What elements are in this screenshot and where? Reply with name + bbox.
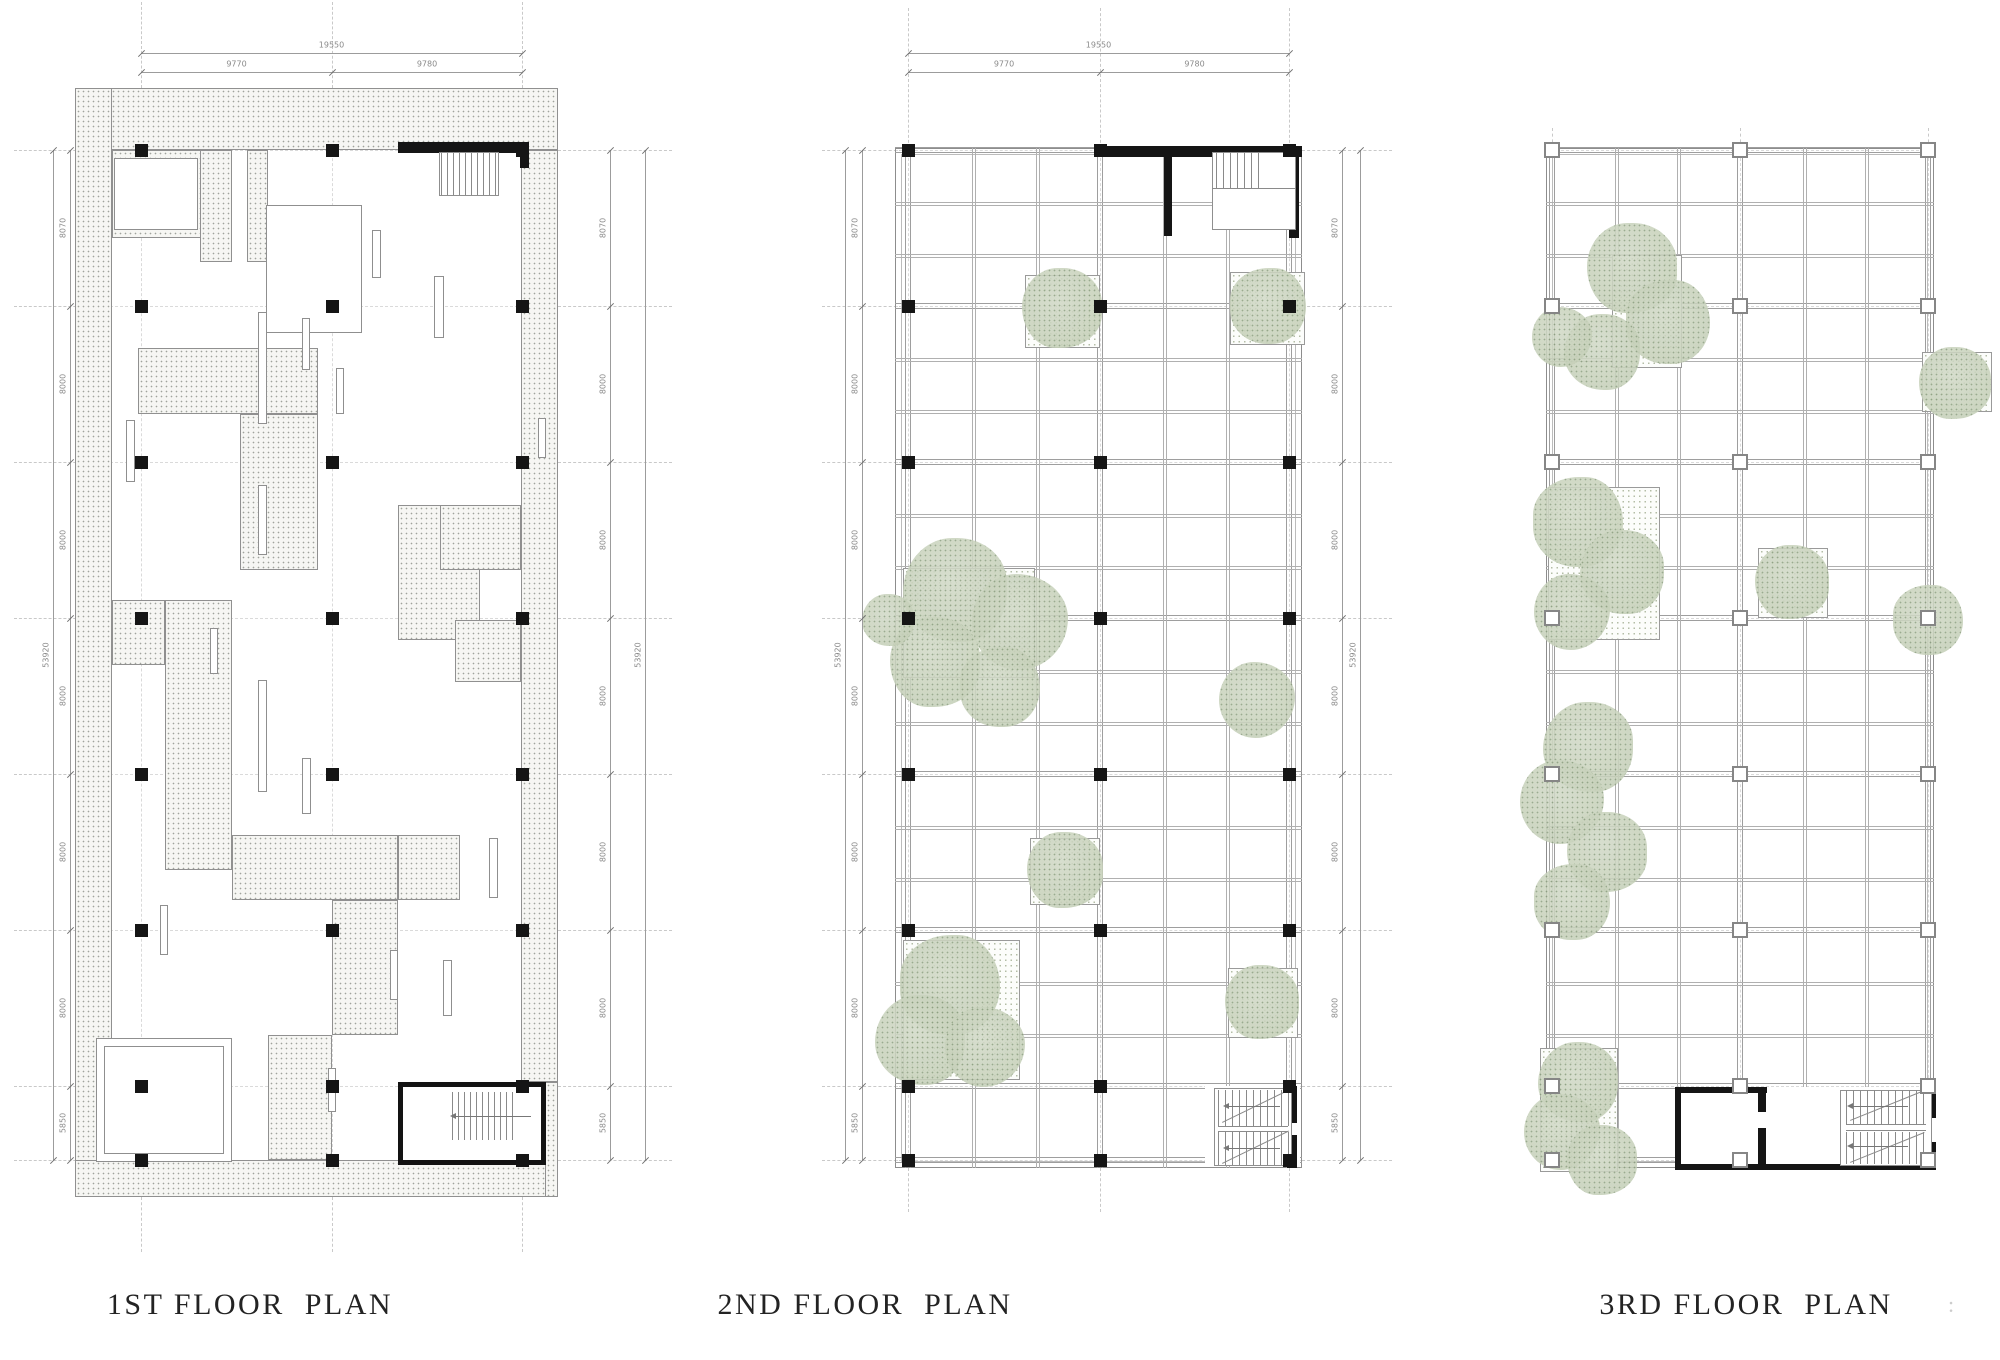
grid-line	[1923, 1090, 1924, 1124]
grid-line	[1852, 1146, 1908, 1147]
grid-line	[1916, 1090, 1917, 1124]
dim-label: 19550	[1086, 41, 1111, 50]
grid-dash-line	[1289, 8, 1290, 148]
dim-label: 8070	[851, 218, 860, 238]
column	[1920, 1078, 1936, 1094]
wall-hatch	[112, 600, 165, 665]
grid-line	[1237, 152, 1238, 188]
grid-dash-line	[141, 2, 142, 88]
second-floor-plan-title: 2ND FLOOR PLAN	[717, 1288, 1012, 1322]
wall-hatch	[268, 1035, 332, 1160]
stair-outline	[439, 152, 499, 196]
stair-arrow-head	[450, 1113, 456, 1119]
column	[902, 612, 915, 625]
grid-line	[1888, 1090, 1889, 1124]
grid-dash-line	[908, 1168, 909, 1212]
grid-line	[471, 153, 472, 195]
grid-line	[1852, 1106, 1908, 1107]
door-slot	[302, 318, 310, 370]
column	[1544, 1152, 1560, 1168]
grid-line	[1166, 148, 1167, 1168]
wall-black	[1758, 1128, 1766, 1168]
grid-line	[1846, 1124, 1926, 1125]
grid-line	[1267, 1090, 1268, 1126]
column	[1732, 142, 1748, 158]
wall-hatch	[455, 620, 521, 682]
grid-line	[441, 153, 442, 195]
column	[1094, 924, 1107, 937]
column	[326, 456, 339, 469]
column	[1094, 144, 1107, 157]
grid-line	[1803, 148, 1804, 1168]
grid-dash-line	[558, 774, 672, 775]
column	[135, 456, 148, 469]
grid-line	[1867, 1090, 1868, 1124]
wall-black	[1164, 146, 1172, 236]
grid-line	[459, 153, 460, 195]
grid-dash-line	[1289, 1168, 1290, 1212]
grid-line	[1546, 1037, 1934, 1038]
grid-line	[1230, 152, 1231, 188]
wall-hatch	[75, 88, 558, 150]
room-outline	[266, 205, 362, 333]
grid-line	[447, 153, 448, 195]
grid-line	[1546, 670, 1934, 671]
column	[902, 924, 915, 937]
stair-room	[398, 1082, 546, 1165]
column	[1283, 456, 1296, 469]
dim-label: 5850	[599, 1113, 608, 1133]
grid-line	[489, 153, 490, 195]
wall-hatch	[75, 88, 112, 1197]
column	[1544, 142, 1560, 158]
grid-line	[1902, 1090, 1903, 1124]
dim-label: 8000	[1331, 686, 1340, 706]
grid-line	[1888, 1132, 1889, 1164]
column	[1094, 300, 1107, 313]
column	[1920, 1152, 1936, 1168]
grid-dash-line	[1302, 1086, 1392, 1087]
grid-line	[1860, 1132, 1861, 1164]
grid-line	[862, 150, 863, 1160]
dim-label: 8000	[851, 530, 860, 550]
grid-line	[1281, 1090, 1282, 1126]
room-outline	[104, 1046, 224, 1154]
dim-label: 8000	[59, 530, 68, 550]
grid-line	[1546, 982, 1934, 983]
column	[135, 1080, 148, 1093]
dim-label: 8000	[1331, 374, 1340, 394]
column	[516, 300, 529, 313]
grid-line	[895, 517, 1302, 518]
dim-label: 9770	[994, 60, 1014, 69]
column	[1544, 1078, 1560, 1094]
stair-outline	[1212, 152, 1296, 230]
grid-line	[1218, 1126, 1288, 1127]
grid-line	[1874, 1090, 1875, 1124]
column	[1283, 612, 1296, 625]
dim-label: 8000	[599, 530, 608, 550]
wall-hatch	[440, 505, 521, 570]
column	[516, 612, 529, 625]
grid-line	[1232, 1090, 1233, 1126]
tree-canopy	[1225, 965, 1299, 1039]
dim-label: 8000	[59, 374, 68, 394]
grid-dash-line	[1302, 150, 1392, 151]
grid-line	[455, 1116, 531, 1117]
dim-label: 8000	[851, 842, 860, 862]
wall-hatch	[545, 1082, 558, 1197]
grid-line	[1342, 150, 1343, 1160]
column	[516, 1080, 529, 1093]
tree-canopy	[1919, 347, 1991, 419]
column	[902, 1080, 915, 1093]
column	[1732, 1078, 1748, 1094]
column	[1544, 922, 1560, 938]
grid-line	[1895, 1132, 1896, 1164]
tree-canopy	[1022, 268, 1102, 348]
grid-dash-line	[1302, 618, 1392, 619]
dim-label: 8000	[851, 374, 860, 394]
column	[902, 1154, 915, 1167]
tree-canopy	[1027, 832, 1103, 908]
grid-line	[1258, 152, 1259, 188]
column	[902, 456, 915, 469]
wall-hatch	[165, 600, 232, 870]
title-suffix-mark: :	[1948, 1292, 1954, 1318]
grid-dash-line	[558, 1160, 672, 1161]
dim-label: 8070	[1331, 218, 1340, 238]
column	[135, 924, 148, 937]
grid-line	[1228, 1148, 1280, 1149]
third-floor-plan-title: 3RD FLOOR PLAN	[1599, 1288, 1892, 1322]
column	[326, 1154, 339, 1167]
column	[1920, 298, 1936, 314]
grid-dash-line	[332, 1197, 333, 1252]
column	[135, 300, 148, 313]
grid-line	[610, 150, 611, 1160]
column	[135, 144, 148, 157]
grid-dash-line	[1302, 774, 1392, 775]
column	[1283, 1080, 1296, 1093]
grid-dash-line	[558, 462, 672, 463]
tree-canopy	[1567, 1125, 1637, 1195]
wall-hatch	[247, 150, 268, 262]
column	[1094, 1080, 1107, 1093]
grid-line	[1218, 1132, 1219, 1165]
column	[326, 144, 339, 157]
grid-line	[895, 826, 1302, 827]
dim-label: 8000	[599, 998, 608, 1018]
grid-line	[1216, 152, 1217, 188]
grid-dash-line	[908, 8, 909, 148]
grid-line	[645, 150, 646, 1160]
wall-hatch	[138, 348, 318, 414]
grid-line	[477, 153, 478, 195]
first-floor-plan-title: 1ST FLOOR PLAN	[107, 1288, 393, 1322]
column	[1283, 144, 1296, 157]
grid-line	[1874, 1132, 1875, 1164]
grid-line	[895, 514, 1302, 515]
column	[1920, 610, 1936, 626]
dim-label: 8000	[599, 842, 608, 862]
door-slot	[443, 960, 452, 1016]
grid-dash-line	[522, 2, 523, 88]
door-slot	[434, 276, 444, 338]
grid-dash-line	[1302, 306, 1392, 307]
grid-dash-line	[558, 306, 672, 307]
dim-label: 53920	[834, 642, 843, 667]
dim-label: 8000	[1331, 842, 1340, 862]
room-outline	[114, 158, 198, 230]
door-slot	[489, 838, 498, 898]
stair-arrow-head	[1223, 1103, 1229, 1109]
grid-line	[1546, 1034, 1934, 1035]
dim-label: 9780	[417, 60, 437, 69]
column	[326, 300, 339, 313]
grid-line	[1902, 1132, 1903, 1164]
tree-canopy	[960, 647, 1040, 727]
grid-line	[465, 153, 466, 195]
column	[1094, 456, 1107, 469]
grid-line	[1895, 1090, 1896, 1124]
grid-line	[1546, 202, 1934, 203]
grid-line	[1546, 205, 1934, 206]
dim-label: 8000	[1331, 998, 1340, 1018]
grid-line	[1360, 150, 1361, 1160]
dim-label: 8000	[599, 686, 608, 706]
door-slot	[258, 312, 267, 424]
grid-dash-line	[1302, 1160, 1392, 1161]
grid-dash-line	[1302, 462, 1392, 463]
grid-dash-line	[1100, 8, 1101, 148]
door-slot	[258, 485, 267, 555]
dim-label: 8000	[851, 686, 860, 706]
grid-line	[1251, 152, 1252, 188]
grid-line	[895, 410, 1302, 411]
column	[516, 144, 529, 157]
grid-line	[1228, 1106, 1280, 1107]
grid-line	[53, 150, 54, 1160]
grid-dash-line	[1100, 1168, 1101, 1212]
grid-dash-line	[141, 1197, 142, 1252]
wall-black	[1675, 1087, 1681, 1170]
column	[326, 1080, 339, 1093]
grid-line	[845, 150, 846, 1160]
grid-line	[1253, 1090, 1254, 1126]
grid-line	[1223, 152, 1224, 188]
grid-line	[1244, 152, 1245, 188]
grid-line	[495, 153, 496, 195]
dim-label: 8070	[59, 218, 68, 238]
column	[1732, 766, 1748, 782]
grid-dash-line	[558, 1086, 672, 1087]
grid-line	[70, 150, 71, 1160]
grid-line	[1246, 1090, 1247, 1126]
grid-line	[1163, 148, 1164, 1168]
grid-line	[1806, 148, 1807, 1168]
wall-hatch	[232, 835, 398, 900]
grid-line	[1868, 148, 1869, 1168]
column	[516, 768, 529, 781]
grid-line	[1546, 985, 1934, 986]
door-slot	[302, 758, 311, 814]
column	[1732, 1152, 1748, 1168]
column	[135, 768, 148, 781]
column	[1732, 298, 1748, 314]
stair-arrow-head	[1847, 1103, 1853, 1109]
grid-line	[895, 829, 1302, 830]
column	[1283, 768, 1296, 781]
door-slot	[126, 420, 135, 482]
column	[516, 456, 529, 469]
grid-line	[1860, 1090, 1861, 1124]
column	[1732, 610, 1748, 626]
dim-label: 5850	[59, 1113, 68, 1133]
grid-line	[895, 358, 1302, 359]
stair-arrow-head	[1223, 1145, 1229, 1151]
grid-line	[141, 53, 522, 54]
grid-line	[1546, 410, 1934, 411]
grid-line	[1218, 1090, 1219, 1126]
stair-arrow-head	[1847, 1143, 1853, 1149]
column	[1920, 142, 1936, 158]
dim-label: 8000	[599, 374, 608, 394]
column	[135, 612, 148, 625]
grid-line	[483, 153, 484, 195]
column	[902, 144, 915, 157]
column	[1732, 922, 1748, 938]
column	[326, 612, 339, 625]
column	[1094, 768, 1107, 781]
grid-line	[908, 53, 1289, 54]
dim-label: 8000	[851, 998, 860, 1018]
grid-line	[1546, 673, 1934, 674]
dim-label: 9780	[1184, 60, 1204, 69]
dim-label: 8000	[59, 998, 68, 1018]
column	[516, 924, 529, 937]
wall-hatch	[240, 414, 318, 570]
column	[1283, 924, 1296, 937]
grid-line	[1212, 188, 1296, 189]
door-slot	[372, 230, 381, 278]
grid-dash-line	[558, 618, 672, 619]
column	[902, 300, 915, 313]
grid-line	[1865, 148, 1866, 1168]
grid-line	[1281, 1132, 1282, 1165]
column	[1544, 298, 1560, 314]
dim-label: 8070	[599, 218, 608, 238]
grid-line	[895, 257, 1302, 258]
grid-line	[895, 413, 1302, 414]
dim-label: 19550	[319, 41, 344, 50]
grid-line	[1546, 413, 1934, 414]
column	[1283, 1154, 1296, 1167]
column	[516, 1154, 529, 1167]
wall-black	[1758, 1090, 1766, 1112]
grid-line	[453, 153, 454, 195]
door-slot	[258, 680, 267, 792]
column	[1544, 766, 1560, 782]
dim-label: 53920	[42, 642, 51, 667]
grid-line	[1867, 1132, 1868, 1164]
dim-label: 5850	[1331, 1113, 1340, 1133]
column	[1732, 454, 1748, 470]
column	[326, 768, 339, 781]
grid-line	[1260, 1090, 1261, 1126]
door-slot	[390, 950, 398, 1000]
column	[1094, 1154, 1107, 1167]
grid-line	[1218, 1131, 1288, 1132]
grid-dash-line	[558, 150, 672, 151]
grid-line	[1239, 1090, 1240, 1126]
door-slot	[538, 418, 546, 458]
wall-black	[1675, 1087, 1767, 1093]
grid-dash-line	[1302, 930, 1392, 931]
column	[1920, 766, 1936, 782]
column	[1920, 454, 1936, 470]
grid-dash-line	[558, 930, 672, 931]
dim-label: 5850	[851, 1113, 860, 1133]
grid-line	[1916, 1132, 1917, 1164]
grid-line	[1846, 1130, 1926, 1131]
floor-plan-sheet: 1ST FLOOR PLAN 2ND FLOOR PLAN 3RD FLOOR …	[0, 0, 2000, 1360]
dim-label: 8000	[59, 842, 68, 862]
wall-hatch	[398, 835, 460, 900]
dim-label: 53920	[1349, 642, 1358, 667]
column	[902, 768, 915, 781]
column	[1094, 612, 1107, 625]
column	[1544, 454, 1560, 470]
tree-canopy	[1755, 545, 1829, 619]
dim-label: 8000	[59, 686, 68, 706]
column	[135, 1154, 148, 1167]
grid-dash-line	[522, 1197, 523, 1252]
column	[1544, 610, 1560, 626]
wall-hatch	[200, 150, 232, 262]
wall-hatch	[332, 900, 398, 1035]
column	[1920, 922, 1936, 938]
column	[326, 924, 339, 937]
door-slot	[210, 628, 218, 674]
door-slot	[336, 368, 344, 414]
grid-line	[895, 254, 1302, 255]
door-slot	[160, 905, 168, 955]
dim-label: 9770	[226, 60, 246, 69]
grid-line	[1288, 1090, 1289, 1126]
dim-label: 8000	[1331, 530, 1340, 550]
column	[1283, 300, 1296, 313]
dim-label: 53920	[634, 642, 643, 667]
grid-line	[895, 361, 1302, 362]
